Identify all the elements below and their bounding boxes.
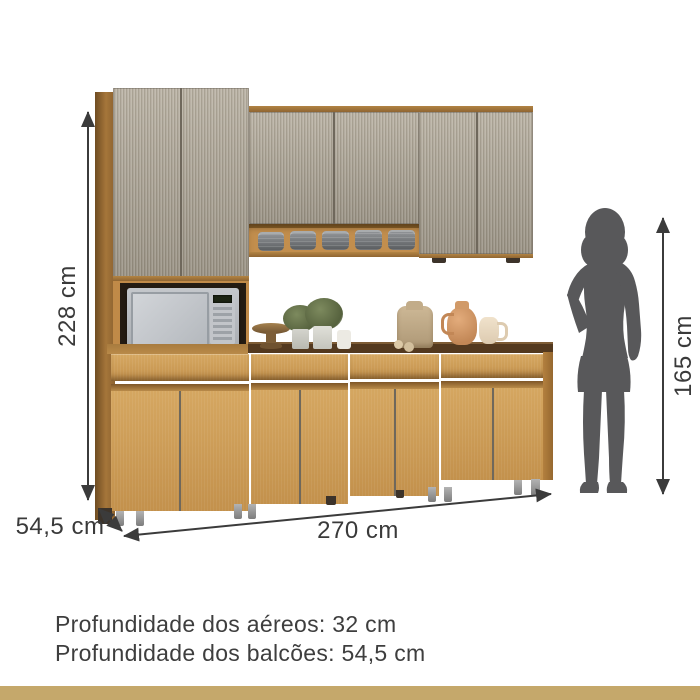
base-door-divider <box>179 391 181 511</box>
cabinet-foot <box>531 479 540 496</box>
cabinet-foot <box>248 504 256 519</box>
decor-pedestal-base <box>260 343 282 349</box>
wall-cabinet-support-tab <box>432 258 446 263</box>
tall-cabinet-door-divider <box>180 88 182 278</box>
microwave-display <box>213 295 232 303</box>
decor-pitcher-handle <box>497 322 508 341</box>
niche-bottom-ledge <box>107 344 248 354</box>
cabinet-foot <box>326 496 336 505</box>
base-doors <box>441 381 543 480</box>
door-handle-groove <box>111 384 249 391</box>
footer-accent-bar <box>0 686 700 700</box>
base-doors <box>251 383 348 504</box>
bowl-stack <box>388 230 415 250</box>
product-dimension-diagram: 228 cm 54,5 cm 270 cm 165 cm Profundidad… <box>0 0 700 700</box>
cabinet-foot <box>234 504 242 519</box>
microwave-control-panel <box>210 292 235 344</box>
width-dimension-label: 270 cm <box>317 517 399 545</box>
decor-jug-handle <box>441 313 454 335</box>
decor-cream-pitcher <box>479 317 499 344</box>
base-doors <box>111 384 249 511</box>
decor-ball <box>404 342 414 352</box>
base-drawer <box>111 354 249 381</box>
base-drawer <box>441 354 543 378</box>
microwave <box>127 288 239 350</box>
base-drawer <box>251 354 348 380</box>
wall-cabinet-door-divider-left <box>333 112 335 224</box>
door-handle-groove <box>350 382 439 389</box>
decor-plant-pot <box>313 326 332 349</box>
height-dimension-label: 228 cm <box>54 265 82 347</box>
cabinet-foot <box>396 490 404 498</box>
door-handle-groove <box>441 381 543 388</box>
decor-plant-pot <box>292 329 309 349</box>
footer-line-aereos: Profundidade dos aéreos: 32 cm <box>55 610 425 639</box>
door-handle-groove <box>251 383 348 390</box>
person-silhouette-icon <box>548 206 660 498</box>
open-shelf-bottom-edge <box>249 252 419 257</box>
cabinet-foot <box>136 511 144 526</box>
wall-cabinet-support-tab <box>506 258 520 263</box>
cabinet-foot <box>428 487 436 502</box>
footer-line-balcoes: Profundidade dos balcões: 54,5 cm <box>55 639 425 668</box>
base-door-divider <box>394 389 396 496</box>
cabinet-foot <box>444 487 452 502</box>
decor-sack-neck <box>406 301 423 310</box>
person-height-dimension-label: 165 cm <box>670 315 698 397</box>
bowl-stack <box>290 231 316 250</box>
bowl-stack <box>355 230 382 250</box>
cabinet-foot <box>116 511 124 526</box>
cabinet-foot <box>514 480 522 495</box>
decor-jar <box>337 330 351 349</box>
microwave-door <box>131 292 209 348</box>
decor-jug-neck <box>455 301 469 309</box>
base-door-divider <box>492 388 494 480</box>
base-doors <box>350 382 439 496</box>
depth-dimension-label: 54,5 cm <box>16 513 105 541</box>
base-drawer <box>350 354 439 379</box>
base-door-divider <box>299 390 301 504</box>
microwave-buttons <box>213 307 232 340</box>
wall-cabinet-door-divider-right <box>476 112 478 254</box>
bowl-stack <box>258 232 284 251</box>
footer-depth-info: Profundidade dos aéreos: 32 cm Profundid… <box>55 610 425 668</box>
bowl-stack <box>322 231 349 250</box>
decor-ball <box>394 340 403 349</box>
